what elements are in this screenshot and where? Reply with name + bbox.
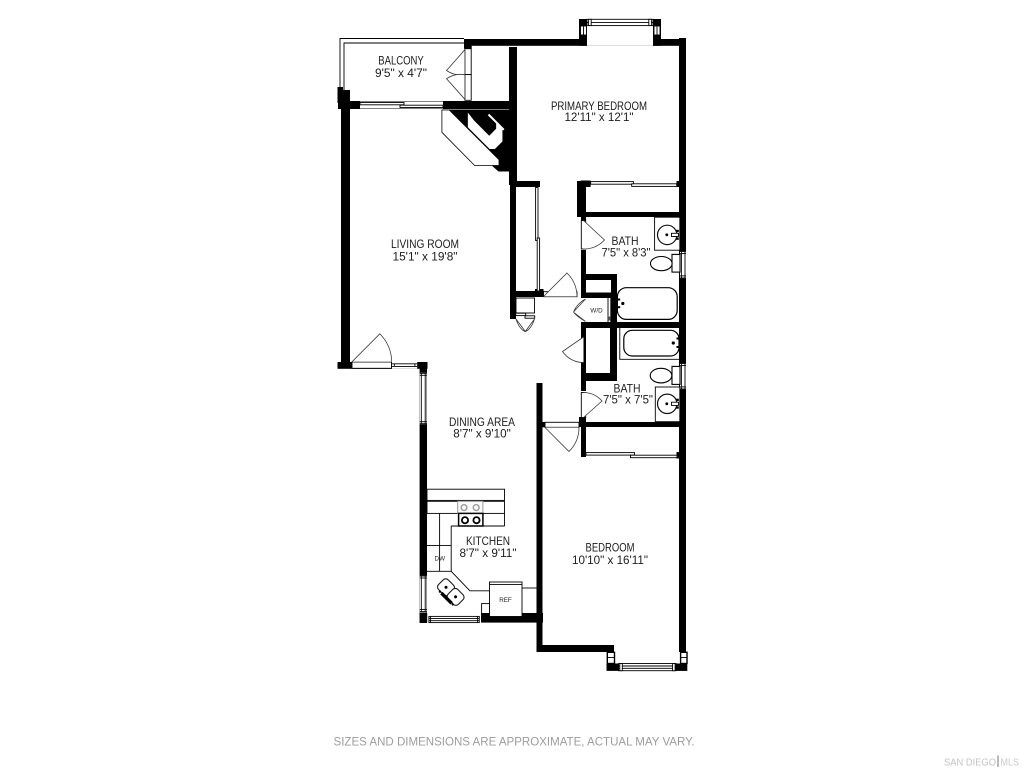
svg-text:SAN DIEGO: SAN DIEGO bbox=[944, 757, 996, 768]
svg-text:MLS: MLS bbox=[1001, 757, 1020, 768]
svg-text:7'5" x 7'5": 7'5" x 7'5" bbox=[603, 394, 653, 407]
svg-text:DW: DW bbox=[435, 556, 446, 563]
svg-text:7'5" x 8'3": 7'5" x 8'3" bbox=[602, 247, 651, 260]
svg-text:10'10" x 16'11": 10'10" x 16'11" bbox=[572, 554, 648, 567]
svg-text:15'1" x 19'8": 15'1" x 19'8" bbox=[393, 251, 458, 264]
svg-text:8'7" x 9'10": 8'7" x 9'10" bbox=[453, 428, 511, 441]
svg-text:BEDROOM: BEDROOM bbox=[586, 542, 635, 555]
svg-text:12'11" x 12'1": 12'11" x 12'1" bbox=[565, 111, 634, 124]
svg-text:BALCONY: BALCONY bbox=[378, 55, 424, 68]
svg-text:REF: REF bbox=[499, 597, 512, 604]
svg-text:LIVING ROOM: LIVING ROOM bbox=[391, 238, 459, 251]
svg-text:W/D: W/D bbox=[590, 308, 603, 315]
svg-text:9'5" x 4'7": 9'5" x 4'7" bbox=[375, 67, 427, 80]
svg-text:SIZES AND DIMENSIONS ARE APPRO: SIZES AND DIMENSIONS ARE APPROXIMATE, AC… bbox=[334, 737, 695, 749]
svg-text:8'7" x 9'11": 8'7" x 9'11" bbox=[460, 547, 517, 560]
